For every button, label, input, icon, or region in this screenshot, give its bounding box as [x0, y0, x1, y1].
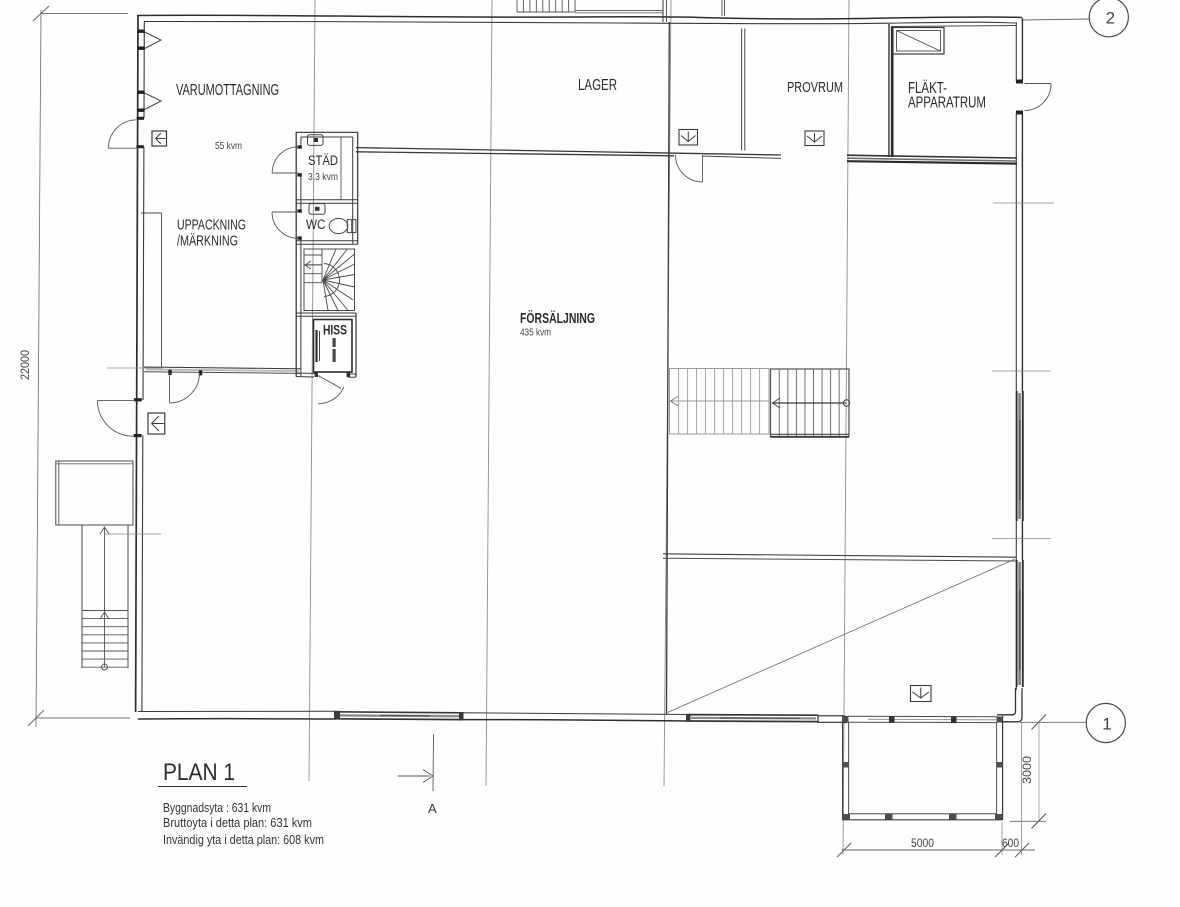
- svg-text:1: 1: [1102, 714, 1111, 733]
- svg-text:Byggnadsyta : 631 kvm: Byggnadsyta : 631 kvm: [163, 801, 271, 815]
- svg-text:UPPACKNING: UPPACKNING: [177, 217, 246, 234]
- svg-text:22000: 22000: [20, 350, 32, 380]
- svg-text:APPARATRUM: APPARATRUM: [908, 95, 986, 112]
- svg-text:Invändig yta i detta plan: 608: Invändig yta i detta plan: 608 kvm: [163, 833, 324, 847]
- svg-text:HISS: HISS: [323, 323, 347, 338]
- svg-text:/MÄRKNING: /MÄRKNING: [177, 233, 238, 250]
- svg-text:STÄD: STÄD: [308, 153, 338, 168]
- svg-text:3.3 kvm: 3.3 kvm: [308, 172, 338, 183]
- svg-text:WC: WC: [306, 217, 326, 232]
- svg-text:Bruttoyta i detta plan: 631 kv: Bruttoyta i detta plan: 631 kvm: [163, 816, 312, 830]
- svg-text:A: A: [428, 801, 437, 816]
- svg-text:FÖRSÄLJNING: FÖRSÄLJNING: [520, 310, 595, 327]
- svg-text:55 kvm: 55 kvm: [215, 140, 242, 152]
- svg-text:PROVRUM: PROVRUM: [787, 79, 843, 96]
- svg-text:600: 600: [1002, 838, 1019, 850]
- svg-text:PLAN 1: PLAN 1: [163, 759, 235, 786]
- svg-text:VARUMOTTAGNING: VARUMOTTAGNING: [176, 82, 279, 99]
- svg-text:LAGER: LAGER: [578, 77, 617, 94]
- svg-text:5000: 5000: [911, 838, 934, 850]
- svg-text:3000: 3000: [1022, 756, 1034, 784]
- svg-text:435 kvm: 435 kvm: [520, 328, 551, 339]
- svg-text:2: 2: [1106, 8, 1115, 27]
